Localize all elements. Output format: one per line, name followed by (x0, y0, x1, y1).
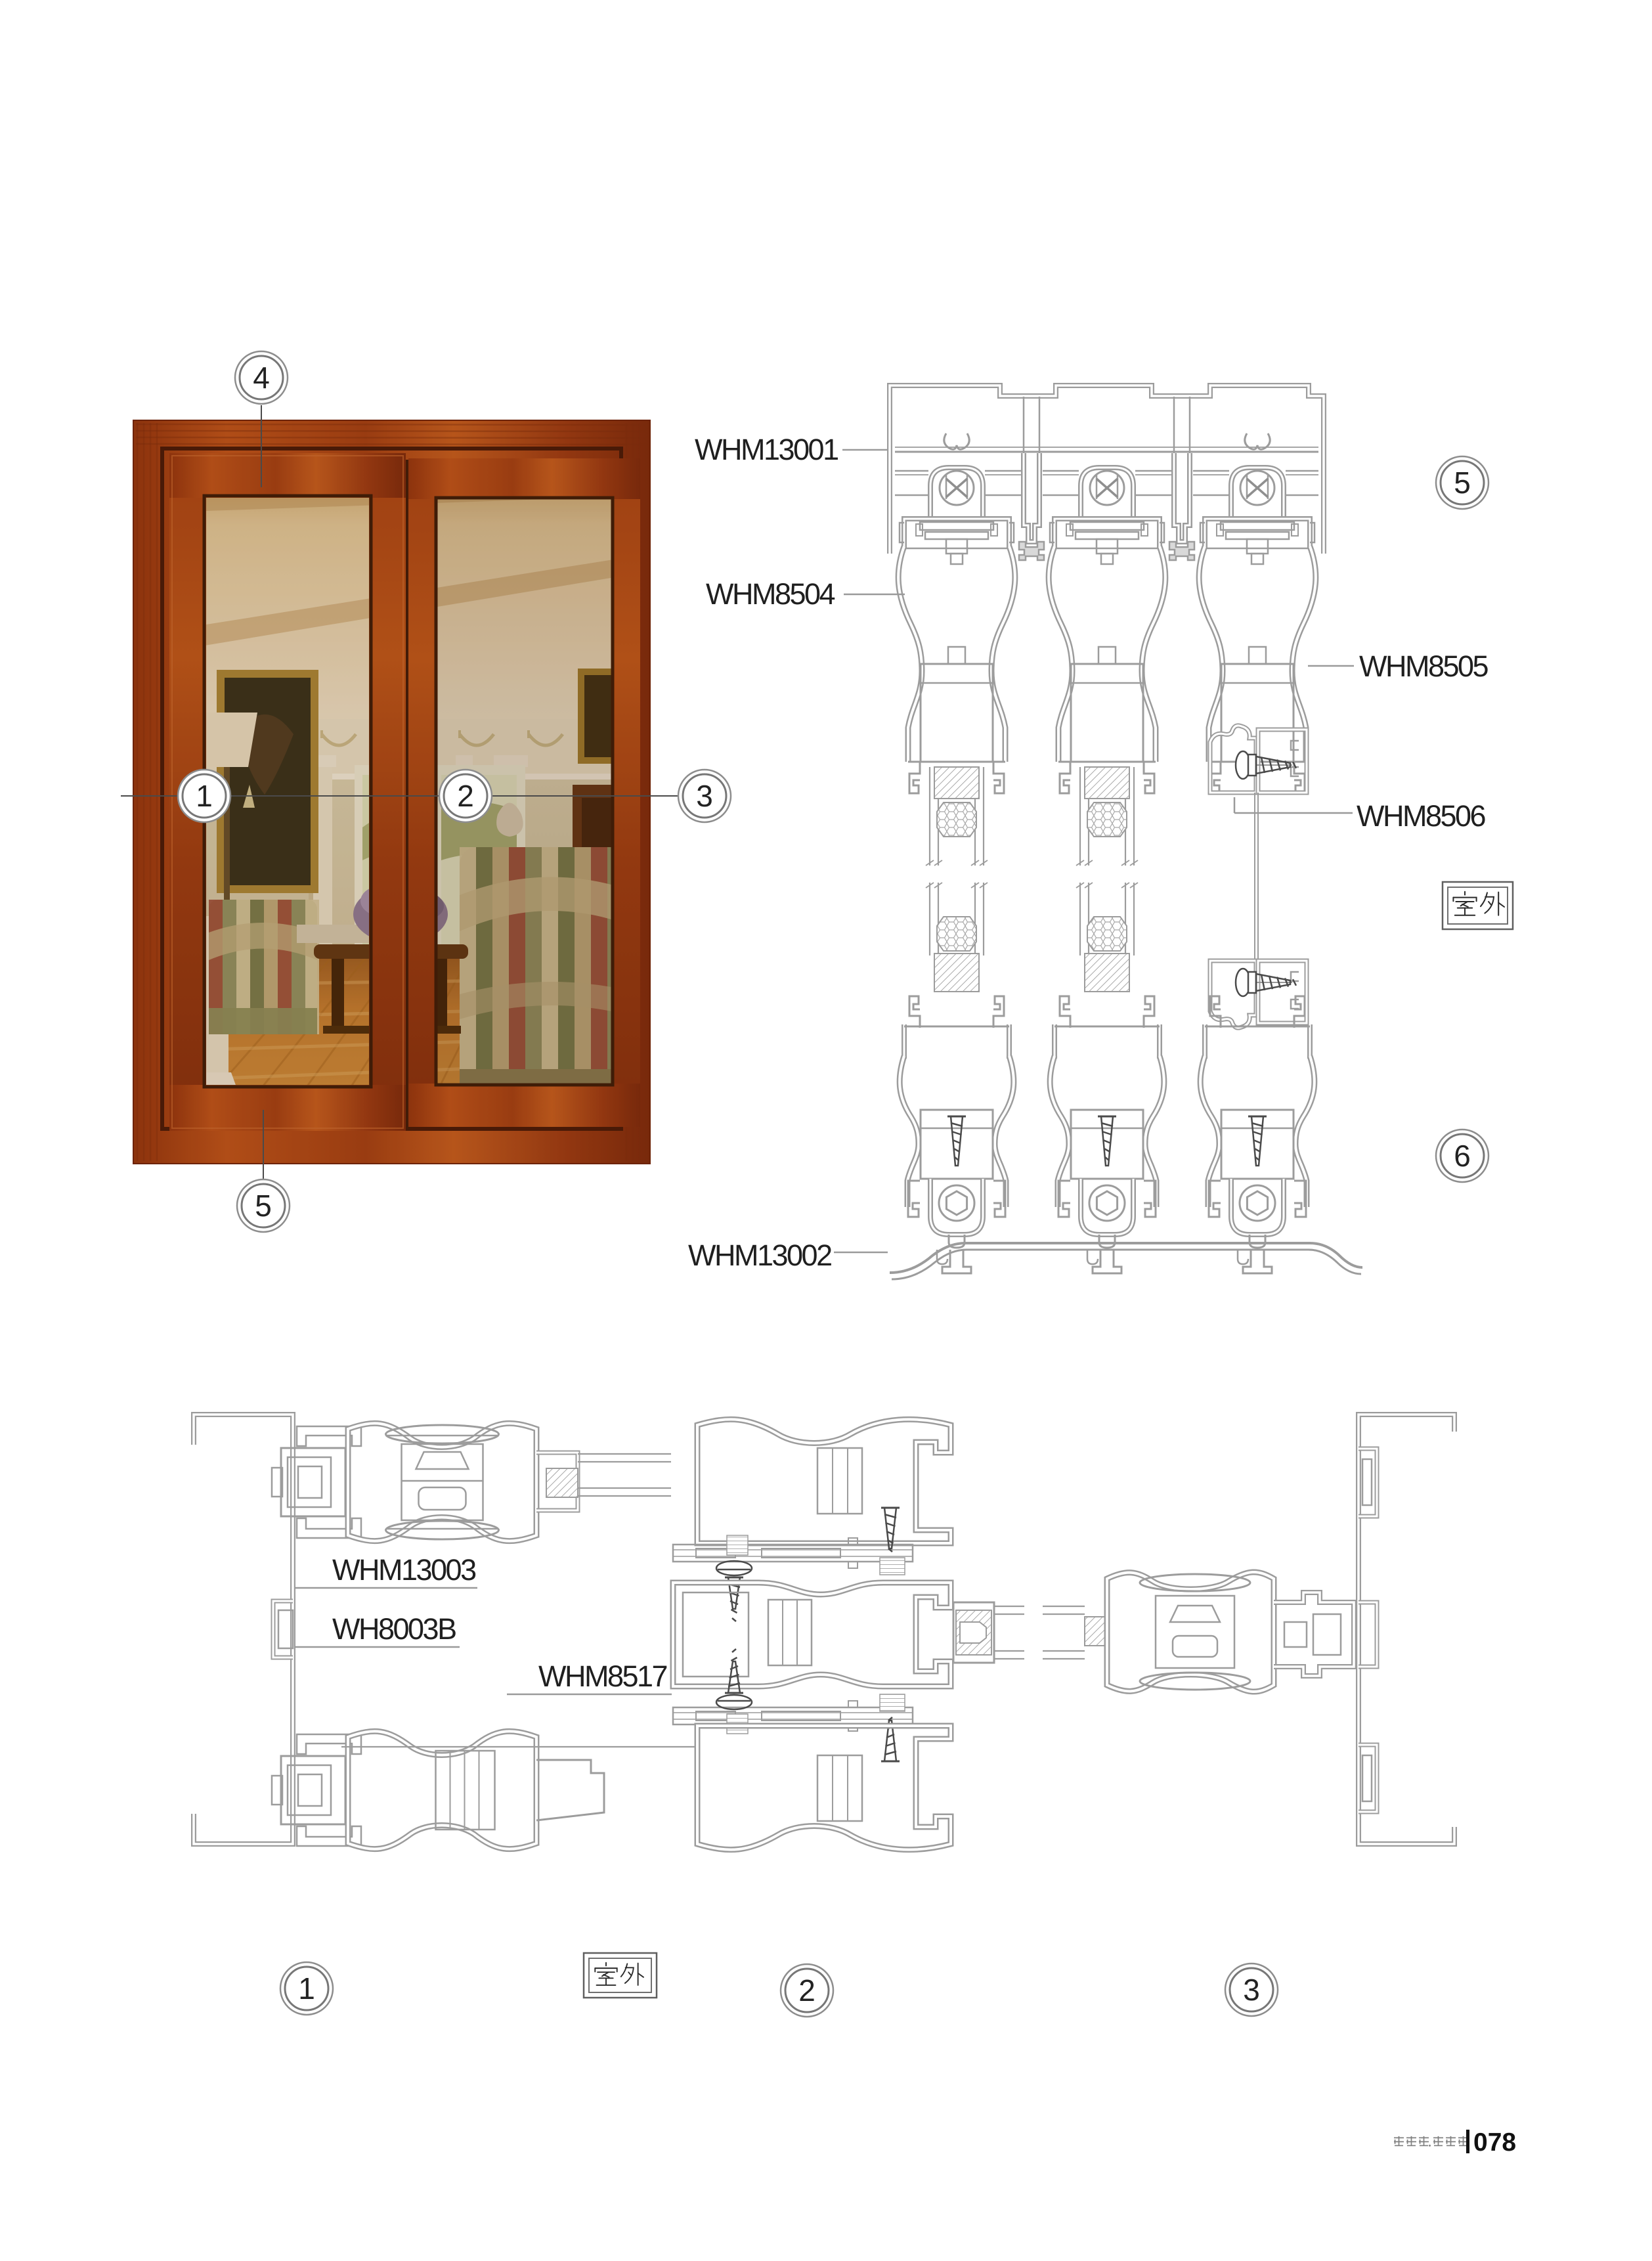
svg-text:5: 5 (255, 1189, 272, 1223)
svg-text:WHM13003: WHM13003 (332, 1553, 476, 1587)
svg-text:1: 1 (196, 779, 213, 813)
svg-text:WHM8506: WHM8506 (1357, 799, 1486, 833)
svg-text:WHM8517: WHM8517 (538, 1659, 667, 1693)
svg-text:WHM8505: WHM8505 (1359, 649, 1489, 683)
svg-text:1: 1 (298, 1971, 315, 2006)
svg-text:2: 2 (457, 779, 474, 813)
svg-text:WHM8504: WHM8504 (706, 577, 835, 611)
svg-text:WH8003B: WH8003B (332, 1612, 456, 1646)
svg-text:5: 5 (1454, 466, 1471, 500)
svg-text:4: 4 (253, 361, 270, 395)
svg-text:WHM13001: WHM13001 (695, 433, 838, 466)
svg-text:3: 3 (696, 779, 713, 813)
svg-text:WHM13002: WHM13002 (688, 1239, 831, 1272)
svg-text:078: 078 (1473, 2128, 1516, 2157)
svg-text:2: 2 (798, 1973, 815, 2008)
svg-text:3: 3 (1243, 1973, 1260, 2007)
svg-text:6: 6 (1454, 1139, 1471, 1173)
